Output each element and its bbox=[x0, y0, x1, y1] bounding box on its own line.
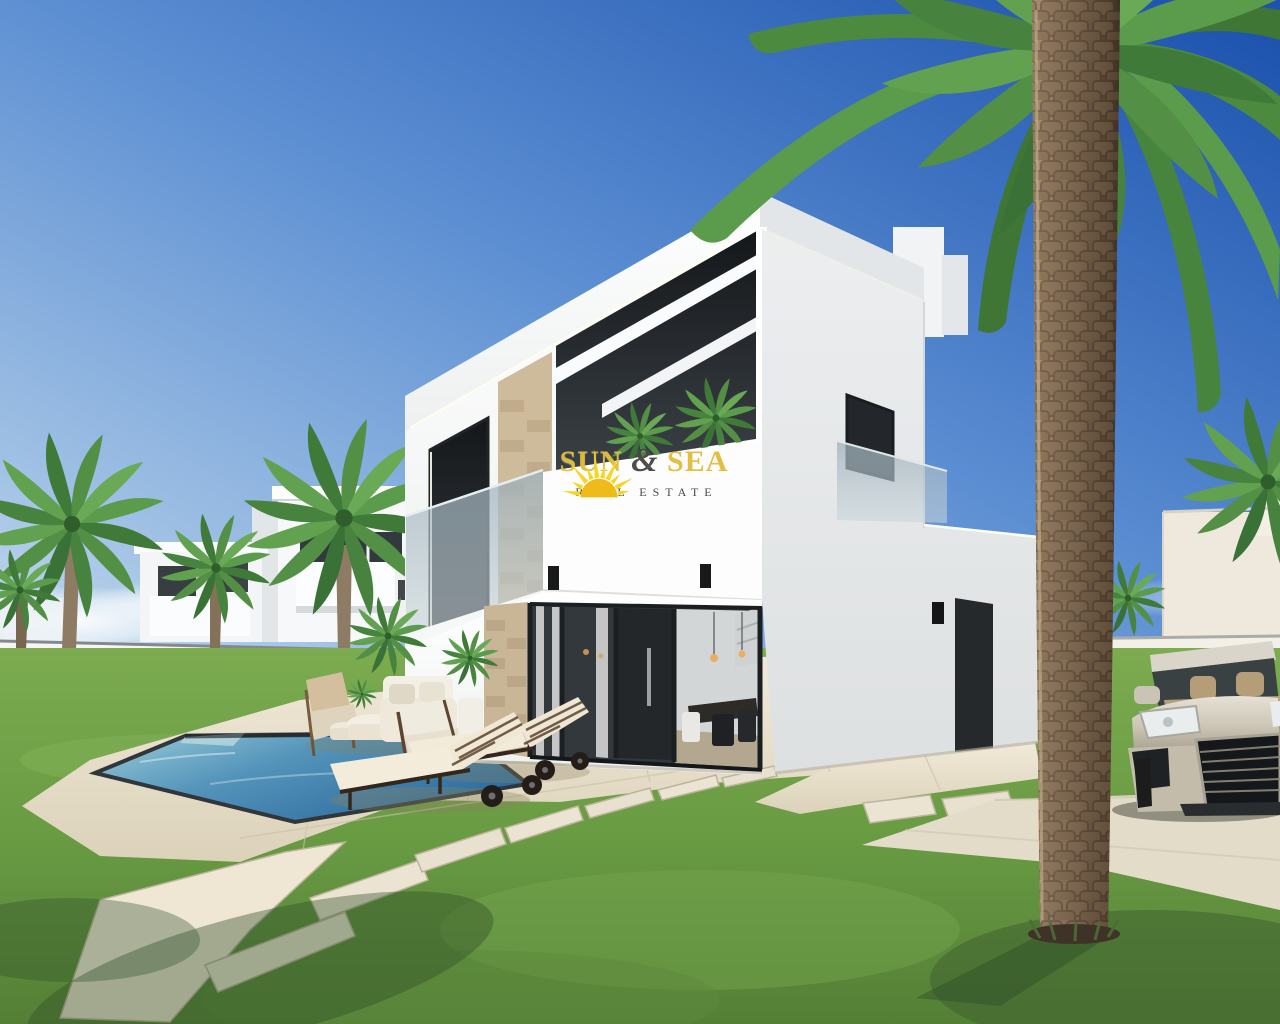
pendant-light bbox=[710, 654, 718, 662]
wall-lamp bbox=[700, 564, 711, 588]
sliding-glass-doors bbox=[530, 603, 762, 770]
car-seat bbox=[1190, 676, 1216, 700]
car-grille bbox=[1196, 734, 1280, 806]
car-mirror bbox=[1134, 686, 1160, 704]
sun-and-sea-watermark: SUN & SEA REAL ESTATE bbox=[548, 444, 740, 500]
entrance-door bbox=[618, 608, 672, 760]
villa-listing-photo: SUN & SEA REAL ESTATE bbox=[0, 0, 1280, 1024]
pendant-light bbox=[739, 651, 746, 658]
wall-lamp bbox=[932, 602, 944, 624]
palm-trunk bbox=[1028, 0, 1120, 944]
sun-logo-icon bbox=[548, 444, 650, 502]
car-seat bbox=[1236, 672, 1264, 696]
dining-chair bbox=[712, 714, 734, 746]
dining-chair bbox=[682, 712, 700, 742]
plant-pot bbox=[458, 698, 483, 736]
wall-lamp bbox=[548, 566, 559, 590]
dining-chair bbox=[738, 710, 756, 742]
door-handle bbox=[647, 648, 651, 706]
logo-word-sea: SEA bbox=[667, 445, 728, 478]
interior-dining-room bbox=[675, 607, 762, 768]
car-lower-bumper bbox=[1180, 802, 1280, 816]
